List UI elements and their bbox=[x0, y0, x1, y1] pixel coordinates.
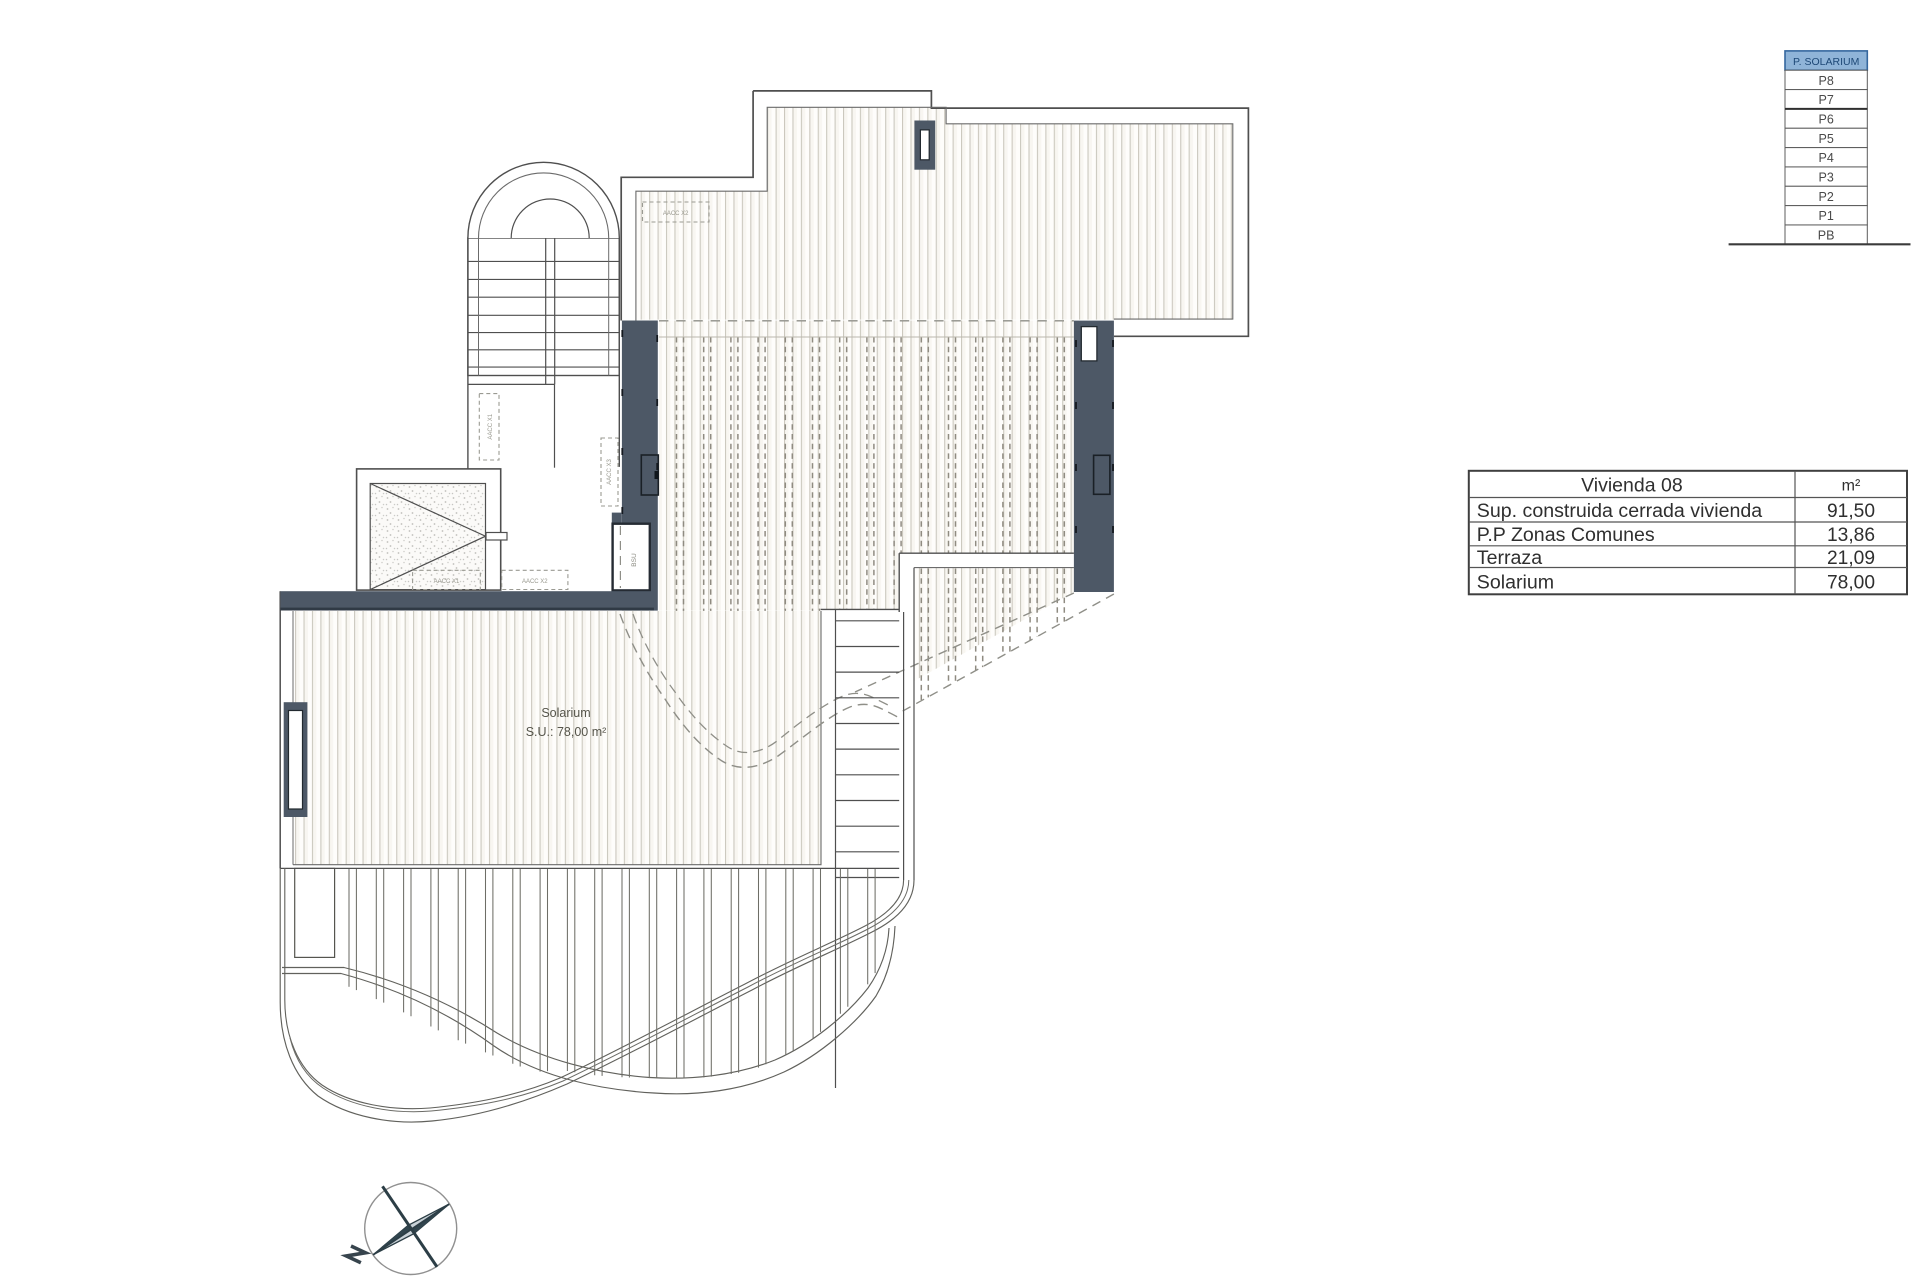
svg-text:AACC X3: AACC X3 bbox=[607, 459, 613, 485]
svg-text:91,50: 91,50 bbox=[1827, 501, 1875, 522]
svg-text:S.U.: 78,00 m²: S.U.: 78,00 m² bbox=[526, 725, 607, 739]
svg-text:Solarium: Solarium bbox=[541, 706, 590, 720]
svg-text:Vivienda 08: Vivienda 08 bbox=[1581, 474, 1683, 496]
svg-text:m²: m² bbox=[1842, 477, 1861, 494]
svg-text:21,09: 21,09 bbox=[1827, 548, 1875, 569]
svg-text:78,00: 78,00 bbox=[1827, 573, 1875, 594]
svg-text:P4: P4 bbox=[1819, 151, 1834, 165]
svg-text:P8: P8 bbox=[1819, 74, 1834, 88]
svg-text:P. SOLARIUM: P. SOLARIUM bbox=[1793, 56, 1859, 68]
svg-text:P6: P6 bbox=[1819, 113, 1834, 127]
svg-text:13,86: 13,86 bbox=[1827, 525, 1875, 546]
svg-text:P1: P1 bbox=[1819, 209, 1834, 223]
svg-text:P5: P5 bbox=[1819, 132, 1834, 146]
svg-text:AACC X2: AACC X2 bbox=[663, 211, 689, 217]
svg-text:AACC X1: AACC X1 bbox=[434, 579, 460, 585]
svg-text:AACC X1: AACC X1 bbox=[488, 413, 494, 439]
svg-text:P3: P3 bbox=[1819, 171, 1834, 185]
svg-text:P7: P7 bbox=[1819, 93, 1834, 107]
svg-text:P2: P2 bbox=[1819, 190, 1834, 204]
svg-text:Solarium: Solarium bbox=[1477, 572, 1554, 594]
svg-text:AACC X2: AACC X2 bbox=[522, 579, 548, 585]
svg-text:Sup. construida cerrada vivien: Sup. construida cerrada vivienda bbox=[1477, 500, 1762, 522]
svg-text:BSU: BSU bbox=[631, 553, 638, 567]
svg-text:PB: PB bbox=[1818, 229, 1835, 243]
svg-text:Terraza: Terraza bbox=[1477, 547, 1542, 569]
svg-text:P.P Zonas Comunes: P.P Zonas Comunes bbox=[1477, 524, 1655, 546]
